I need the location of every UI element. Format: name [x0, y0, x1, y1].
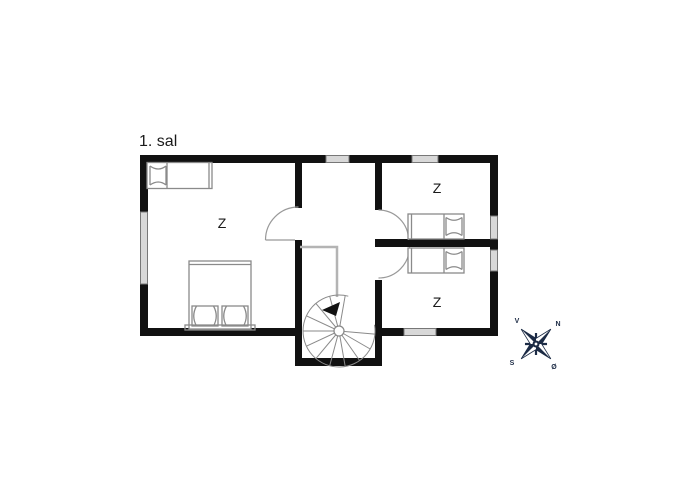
wall-top — [140, 155, 498, 163]
compass-rose-icon: N Ø S V — [506, 314, 565, 373]
spiral-staircase — [300, 247, 375, 367]
wall-stair-alcove-bottom — [295, 358, 382, 366]
wall-divider-right-rooms — [375, 239, 498, 247]
window-left — [141, 212, 148, 284]
window-bottom — [404, 329, 436, 336]
wall-bottom-right — [378, 328, 498, 336]
wall-hall-left-lower — [295, 240, 302, 365]
bed-double-bottom-left — [185, 261, 255, 330]
compass-west-label: V — [515, 318, 520, 325]
bed-single-top-right — [408, 214, 464, 239]
wall-hall-right-upper — [375, 163, 382, 210]
wall-hall-right-lower — [375, 280, 382, 365]
door-arc-left-room — [266, 207, 299, 240]
floor-plan-page: 1. sal — [0, 0, 700, 500]
wall-right-upper — [490, 155, 498, 216]
stair-center-post — [334, 326, 344, 336]
window-top-2 — [412, 156, 438, 163]
window-right-2 — [491, 250, 498, 271]
room-label-bottom-right: Z — [433, 294, 442, 310]
compass-north-label: N — [555, 321, 560, 328]
window-right-1 — [491, 216, 498, 239]
door-arc-top-right-room — [379, 210, 409, 240]
door-arc-bottom-right-room — [379, 247, 410, 278]
page-title: 1. sal — [139, 133, 177, 150]
bed-single-top-left — [147, 163, 212, 189]
compass-east-label: Ø — [551, 364, 557, 371]
wall-hall-left-upper — [295, 163, 302, 208]
stair-railing — [300, 247, 337, 297]
floor-plan-drawing: 1. sal — [0, 0, 700, 500]
compass-south-label: S — [510, 360, 515, 367]
window-top-1 — [326, 156, 349, 163]
room-label-left: Z — [218, 215, 227, 231]
wall-right-lower — [490, 271, 498, 336]
room-label-top-right: Z — [433, 180, 442, 196]
bed-single-bottom-right — [408, 248, 464, 273]
